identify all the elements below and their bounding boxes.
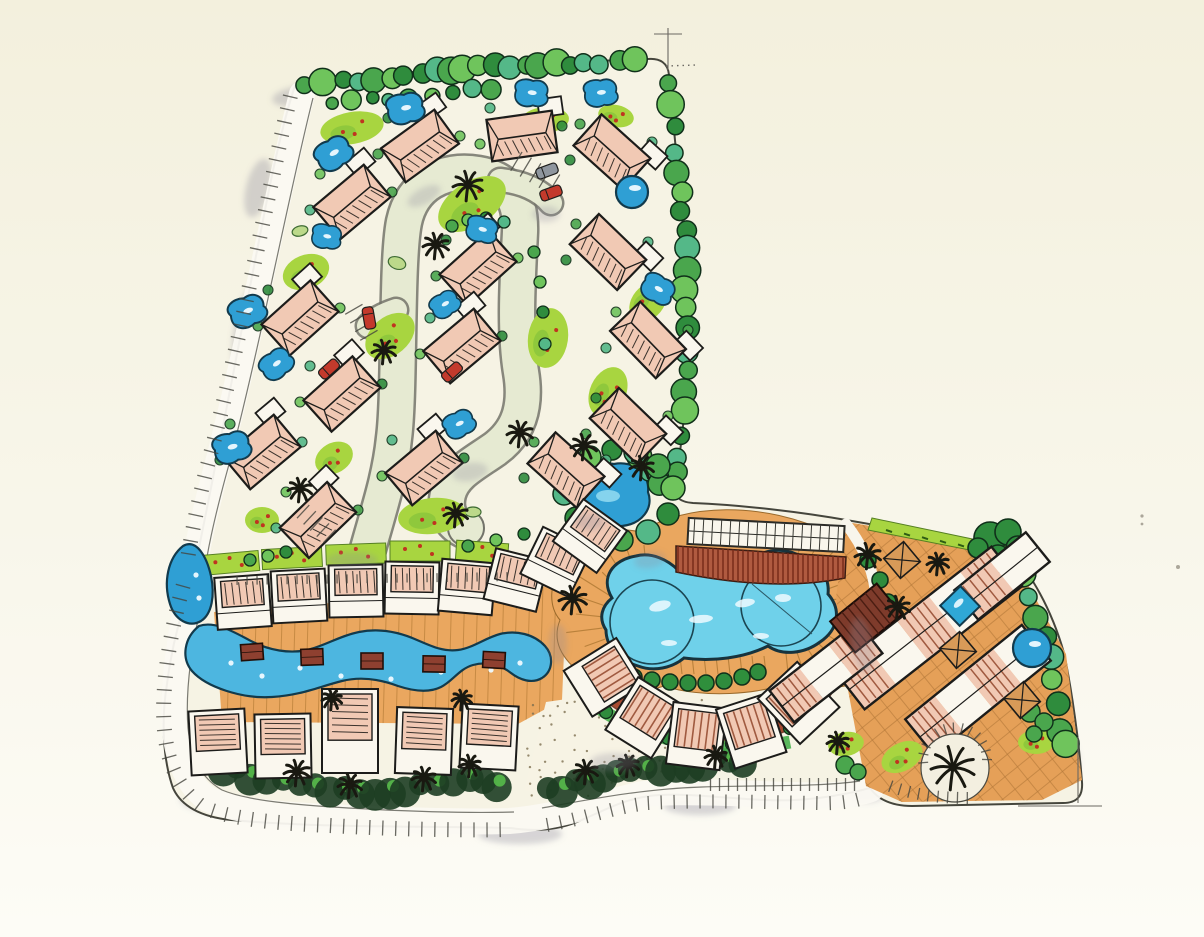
- resort-masterplan-drawing: [0, 0, 1204, 937]
- scanned-site-plan-page: [0, 0, 1204, 937]
